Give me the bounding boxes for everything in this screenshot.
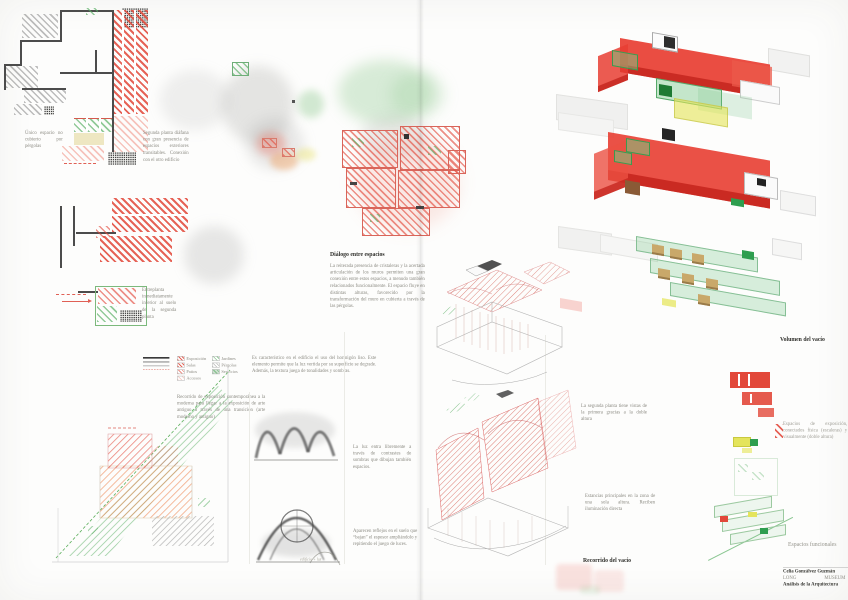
iso-yellow-bit	[748, 512, 757, 517]
red-scribble	[775, 424, 783, 438]
hatched-terrace	[24, 90, 66, 103]
iso-green-bit	[760, 528, 768, 534]
red-fragment	[730, 372, 770, 388]
yellow-wash	[296, 148, 316, 161]
charcoal-sketch-vaults	[250, 390, 342, 465]
axon-tan-box	[652, 244, 664, 256]
green-roof-bit	[86, 8, 98, 15]
red-arrow-line	[62, 301, 88, 302]
course-name: Análisis de la Arquitectura	[783, 581, 848, 587]
axon-bright-green-box	[731, 198, 744, 207]
pencil-axon-upper	[422, 252, 577, 402]
red-plan-bit	[282, 148, 295, 157]
hatched-terrace	[6, 66, 38, 88]
plan-wall	[20, 40, 62, 42]
fragment-gap	[748, 374, 750, 386]
axon-tan-box	[692, 253, 704, 265]
site-plan	[48, 358, 238, 568]
red-fragment	[742, 392, 772, 405]
caption-entreplanta: Entreplanta inmediatamente inferior al s…	[142, 286, 176, 320]
label-volumen-del-vacio: Volumen del vacío	[780, 336, 825, 342]
charcoal-sketch-arch	[250, 468, 346, 568]
poster-board: Único espacio no cubierto por pérgolas S…	[0, 0, 848, 600]
axon-brown-box	[625, 180, 640, 196]
hatched-terrace	[22, 14, 58, 38]
axon-tan-box	[706, 278, 718, 290]
grey-wash	[184, 226, 244, 284]
green-wash	[298, 90, 324, 118]
pink-room	[62, 146, 104, 161]
red-gallery-band	[114, 10, 148, 114]
plan-wall	[60, 10, 62, 40]
axon-black-box	[757, 178, 766, 187]
green-cell	[352, 138, 364, 147]
band-gap	[122, 10, 124, 114]
plan-wall	[73, 206, 75, 246]
axon-tan-box	[698, 294, 710, 306]
label-espacios-funcionales: Espacios funcionales	[788, 541, 836, 547]
plan-wall	[60, 72, 112, 74]
dialogue-body: La reiterada presencia de cristaleras y …	[330, 262, 425, 309]
caption-estancias: Estancias principales en la zona de una …	[585, 492, 655, 512]
band-gap	[134, 10, 136, 114]
grey-wash	[160, 70, 230, 130]
caption-reflejos: Aparecen reflejos en el suelo que “bajan…	[353, 527, 417, 547]
cell-gap	[99, 118, 101, 131]
green-cell	[370, 214, 380, 222]
yellow-fragment	[742, 448, 752, 453]
red-fragment	[758, 408, 774, 417]
axon-tan-box	[658, 268, 670, 280]
pale-plan-cell	[752, 472, 764, 480]
fragment-gap	[738, 374, 740, 386]
caption-luz: La luz entra libremente a través de cont…	[353, 443, 411, 470]
axon-yellow-box	[662, 298, 676, 307]
axon-red-wing	[594, 140, 628, 200]
plan-wall	[20, 40, 22, 66]
green-cell	[428, 146, 441, 155]
stipple-core	[44, 106, 54, 115]
stipple-core	[120, 310, 142, 322]
tan-room	[74, 133, 104, 145]
axon-tan-box	[670, 248, 682, 260]
title-block: Celia Gonzálvez Guzmán LONG MUSEUM Análi…	[783, 567, 848, 588]
dark-mark	[350, 182, 357, 185]
sketch-handwritten-note: edificio + luz	[300, 557, 321, 562]
fragment-gap	[750, 394, 752, 403]
axon-white-box	[780, 190, 816, 216]
caption-hormigon: Es característico en el edificio el uso …	[252, 354, 376, 374]
green-faint-block	[580, 586, 600, 594]
plan-wall	[95, 50, 97, 74]
label-recorrido-del-vacio: Recorrido del vacío	[583, 557, 631, 563]
red-dash-line	[56, 294, 86, 295]
red-plan-bit	[262, 138, 277, 148]
red-arrow-head	[88, 299, 92, 303]
cell-gap	[86, 118, 88, 131]
axon-tan-box	[682, 273, 694, 285]
zone-gap	[112, 214, 188, 216]
dialogue-heading: Diálogo entre espacios	[330, 251, 385, 257]
red-room	[448, 150, 466, 174]
project-name-right: MUSEUM	[824, 575, 845, 581]
green-cells	[74, 118, 112, 132]
red-room	[342, 130, 398, 168]
author-name: Celia Gonzálvez Guzmán	[783, 567, 848, 575]
stipple-core	[108, 152, 136, 165]
axon-black-box	[662, 128, 675, 141]
caption-doble-altura: La segunda planta tiene vistas de la pri…	[581, 402, 647, 422]
dark-mark	[292, 100, 295, 103]
pale-plan-cell	[738, 464, 748, 472]
plan-wall	[60, 206, 62, 268]
red-room	[346, 168, 396, 208]
green-plan-bit	[232, 62, 249, 76]
dark-mark	[404, 134, 409, 139]
iso-red-bit	[720, 516, 728, 522]
axon-white-box	[772, 238, 802, 260]
caption-exposicion: Espacios de exposición, conectados físic…	[783, 420, 847, 440]
axon-dark-green-box	[659, 84, 672, 97]
caption-segunda: Segunda planta diáfana con gran presenci…	[143, 129, 189, 163]
project-name-left: LONG	[783, 575, 796, 581]
red-zone	[96, 226, 110, 238]
yellow-fragment	[733, 437, 751, 447]
hatched-terrace	[14, 104, 42, 115]
red-room	[398, 170, 460, 208]
red-dash-line	[64, 163, 96, 164]
caption-unico: Único espacio no cubierto por pérgolas	[25, 129, 63, 149]
paper-fold-crease	[416, 0, 424, 600]
axon-white-slab	[768, 48, 810, 77]
pencil-axon-lower	[418, 388, 578, 560]
green-fragment	[750, 439, 758, 446]
axon-black-box	[664, 36, 675, 49]
red-zone	[100, 236, 172, 262]
green-zone	[97, 306, 117, 322]
